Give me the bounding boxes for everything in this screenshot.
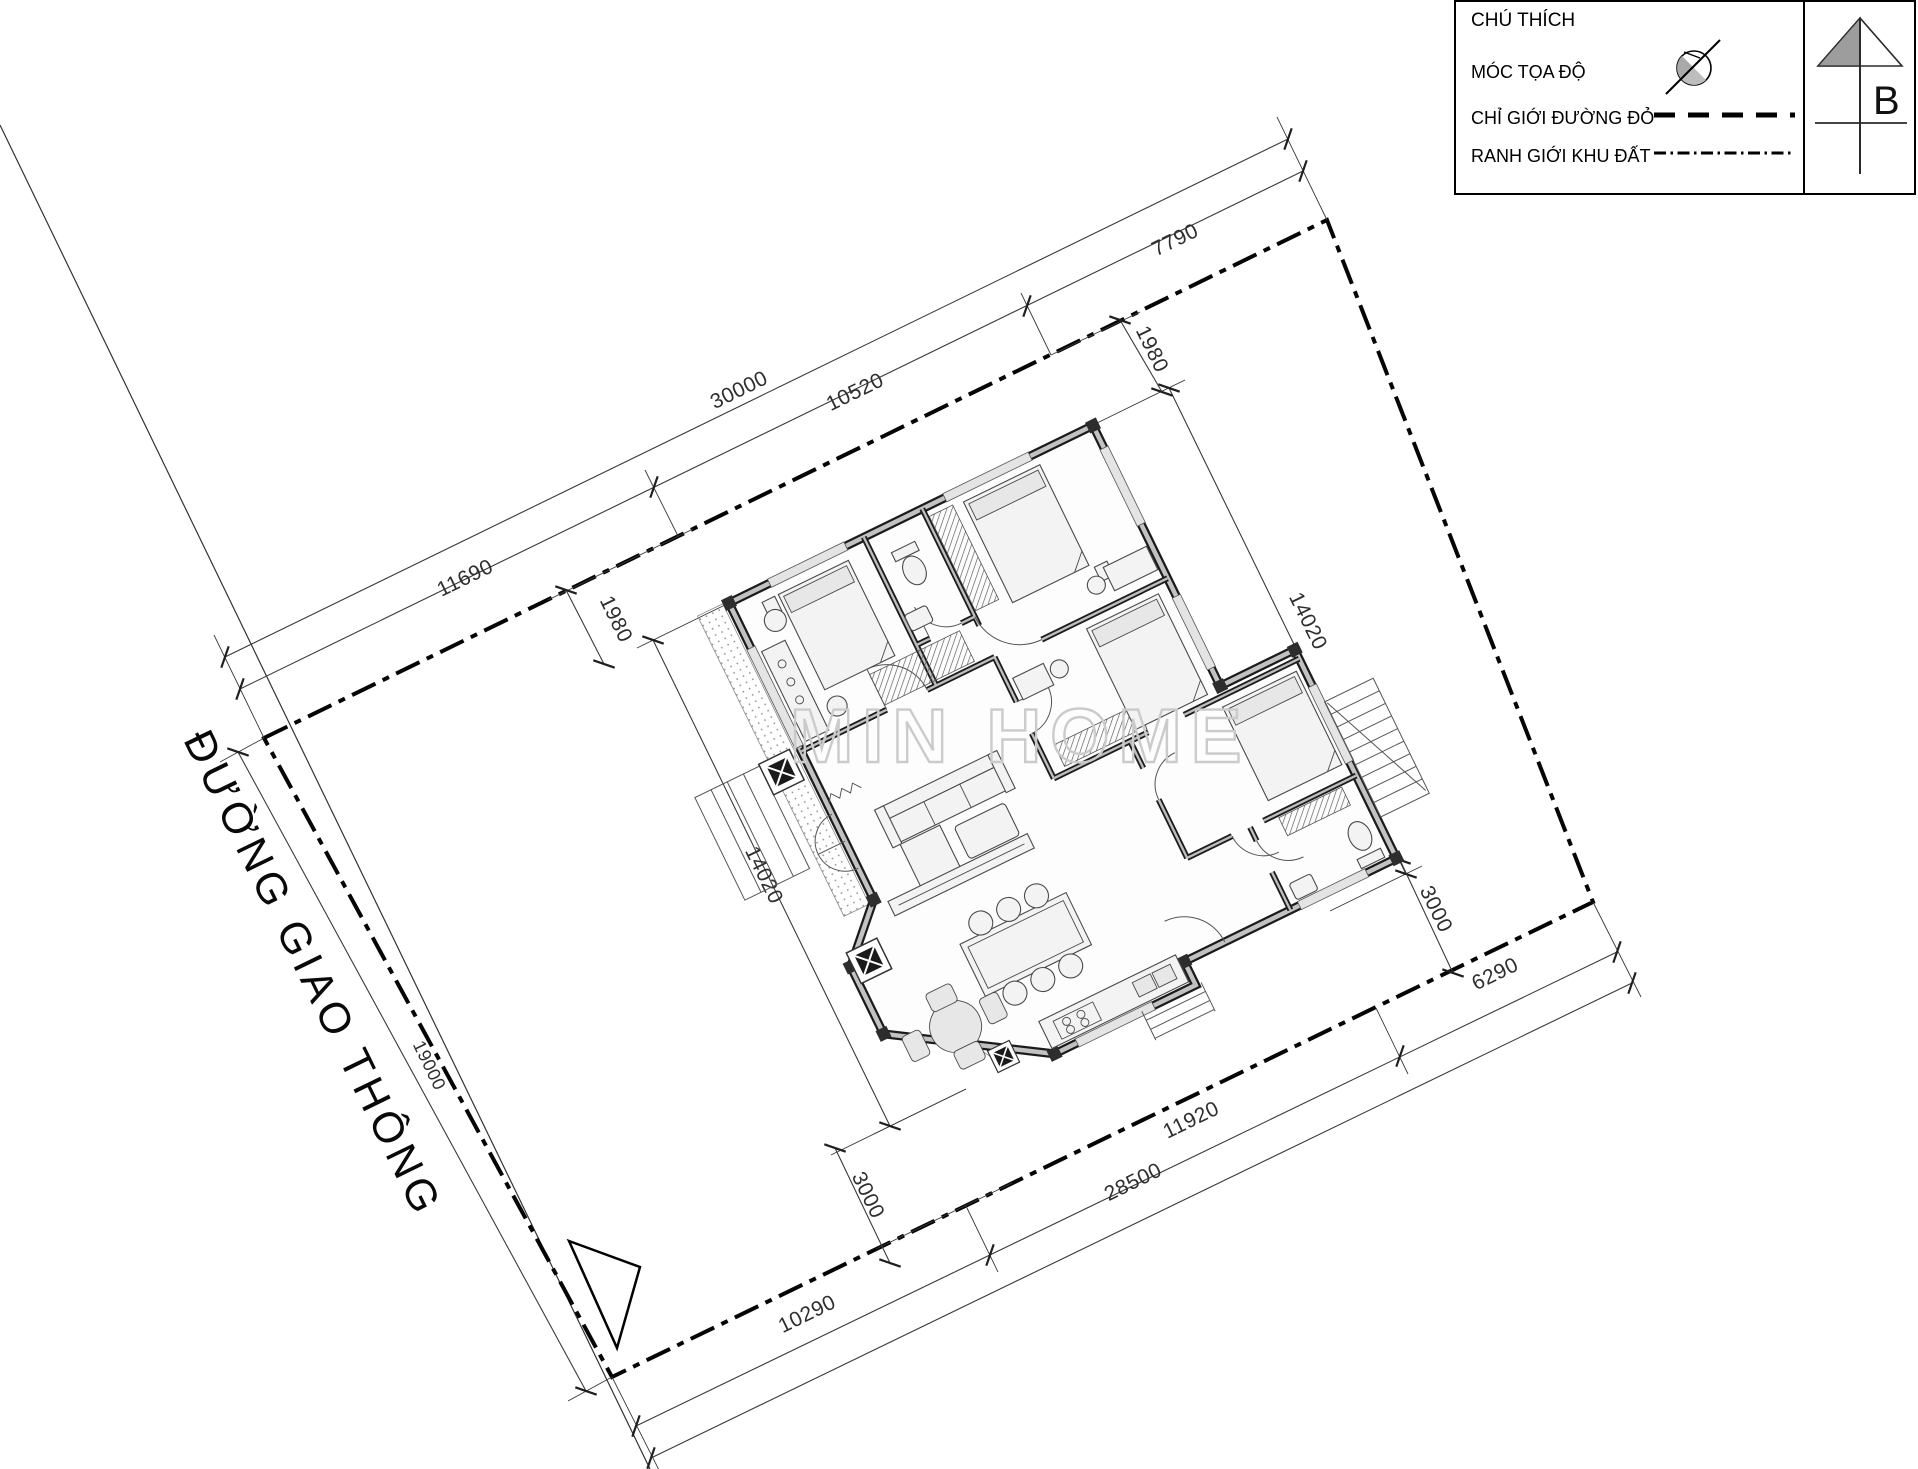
dashed-line-icon	[1652, 106, 1797, 124]
dim-top-seg-mid: 10520	[823, 368, 888, 415]
road-name-label: ĐƯỜNG GIAO THÔNG	[174, 723, 452, 1225]
dim-house-left: 14020	[740, 843, 787, 908]
north-arrow-icon: B	[1805, 2, 1916, 193]
legend-items-panel: CHÚ THÍCH MÓC TỌA ĐỘ CHỈ GIỚI ĐƯỜNG ĐỎ R…	[1456, 2, 1805, 193]
dim-setback-top-left: 1980	[595, 592, 637, 646]
dim-bottom-seg-mid: 11920	[1159, 1097, 1222, 1144]
north-arrow-panel: B	[1805, 2, 1914, 193]
survey-marker-icon	[1654, 28, 1738, 104]
dim-house-right: 14020	[1284, 589, 1331, 654]
watermark-text: MIN HOME	[790, 694, 1250, 779]
legend-item-red-line: CHỈ GIỚI ĐƯỜNG ĐỎ	[1471, 108, 1654, 129]
entrance-triangle-marker	[569, 1241, 640, 1348]
legend-title: CHÚ THÍCH	[1471, 10, 1575, 32]
dim-bottom-seg-left: 10290	[775, 1290, 840, 1337]
north-label: B	[1873, 79, 1900, 123]
legend-item-survey-marker: MÓC TỌA ĐỘ	[1471, 62, 1586, 83]
dimension-road-frontage	[227, 741, 596, 1401]
dim-bottom-overall: 28500	[1101, 1158, 1166, 1205]
dim-setback-bottom-right: 3000	[1415, 882, 1457, 936]
dimension-bottom-overall	[640, 972, 1642, 1468]
dim-road-frontage: 19000	[409, 1037, 450, 1093]
legend-item-site-boundary: RANH GIỚI KHU ĐẤT	[1471, 146, 1650, 167]
dash-dot-line-icon	[1652, 146, 1797, 160]
site-plan-drawing: ĐƯỜNG GIAO THÔNG	[0, 0, 1918, 1469]
road-edge-line	[0, 125, 650, 1469]
dim-setback-bottom-left: 3000	[847, 1168, 889, 1222]
dim-top-seg-right: 7790	[1148, 219, 1202, 261]
legend-box: CHÚ THÍCH MÓC TỌA ĐỘ CHỈ GIỚI ĐƯỜNG ĐỎ R…	[1454, 0, 1916, 195]
dim-top-seg-left: 11690	[433, 555, 496, 602]
road: ĐƯỜNG GIAO THÔNG	[0, 125, 650, 1469]
